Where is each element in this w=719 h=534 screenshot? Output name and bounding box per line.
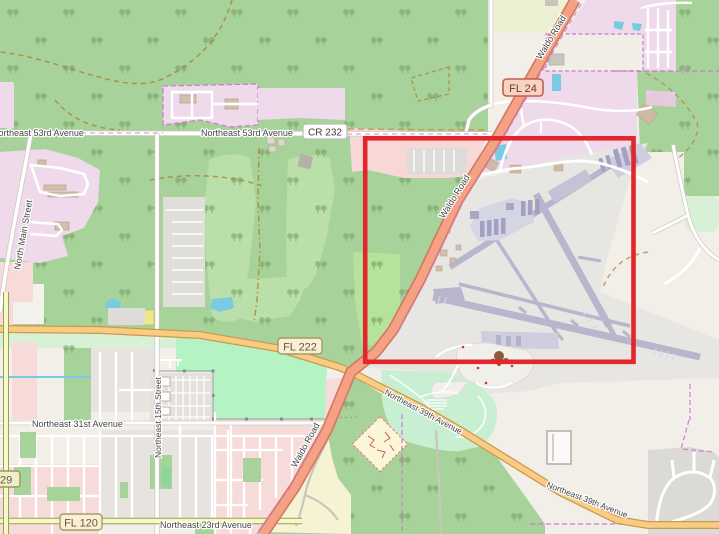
svg-text:Northeast 15th Street: Northeast 15th Street xyxy=(153,377,163,458)
svg-text:Northeast 53rd Avenue: Northeast 53rd Avenue xyxy=(0,128,84,138)
svg-text:Northeast 31st Avenue: Northeast 31st Avenue xyxy=(32,419,123,429)
svg-text:FL 120: FL 120 xyxy=(64,518,98,530)
svg-text:329: 329 xyxy=(0,475,12,487)
svg-text:Northeast 23rd Avenue: Northeast 23rd Avenue xyxy=(160,520,252,530)
svg-text:Northeast 53rd Avenue: Northeast 53rd Avenue xyxy=(201,128,293,138)
svg-text:FL 24: FL 24 xyxy=(509,83,537,95)
svg-text:CR 232: CR 232 xyxy=(308,128,342,139)
svg-text:FL 222: FL 222 xyxy=(283,342,317,354)
